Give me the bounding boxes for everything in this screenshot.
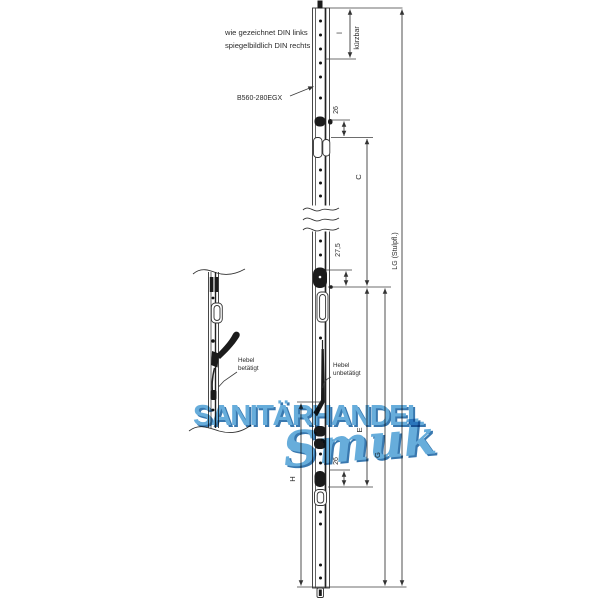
main-espagnolette-drawing — [303, 1, 343, 598]
lever-idle-label-1: Hebel — [333, 362, 349, 369]
dim-label-kuerzbar: kürzbar — [354, 26, 361, 50]
bottom-pin — [317, 588, 324, 598]
din-note-line2: spiegelbildlich DIN rechts — [225, 41, 310, 50]
dim-label-27-5: 27,5 — [335, 243, 342, 257]
break-marks — [303, 206, 343, 232]
break-top — [193, 269, 245, 274]
dim-label-lg: LG (Stulpfl.) — [392, 232, 399, 269]
part-number-label: B560-280EGX — [237, 95, 282, 102]
dim-label-c: C — [354, 174, 363, 180]
lower-slot — [315, 490, 327, 506]
leader-lever-actuated — [219, 372, 238, 387]
technical-drawing-page: wie gezeichnet DIN links spiegelbildlich… — [0, 0, 600, 600]
main-slot — [317, 292, 328, 322]
upper-slot — [314, 138, 330, 158]
top-pin — [318, 1, 323, 9]
lever-idle-label-2: unbetätigt — [333, 370, 361, 377]
leader-part-label — [290, 87, 314, 97]
lever-actuated-label-1: Hebel — [238, 357, 254, 364]
detail-hole-2 — [211, 339, 215, 343]
detail-hole — [212, 297, 215, 300]
drawing-svg: wie gezeichnet DIN links spiegelbildlich… — [0, 0, 600, 600]
lever-actuated-label-2: betätigt — [238, 365, 259, 372]
dim-label-26-upper: 26 — [333, 106, 340, 114]
din-note-line1: wie gezeichnet DIN links — [224, 28, 308, 37]
detail-slot — [211, 303, 222, 323]
detail-top-block — [210, 277, 218, 292]
dim-label-l: l — [335, 32, 344, 34]
